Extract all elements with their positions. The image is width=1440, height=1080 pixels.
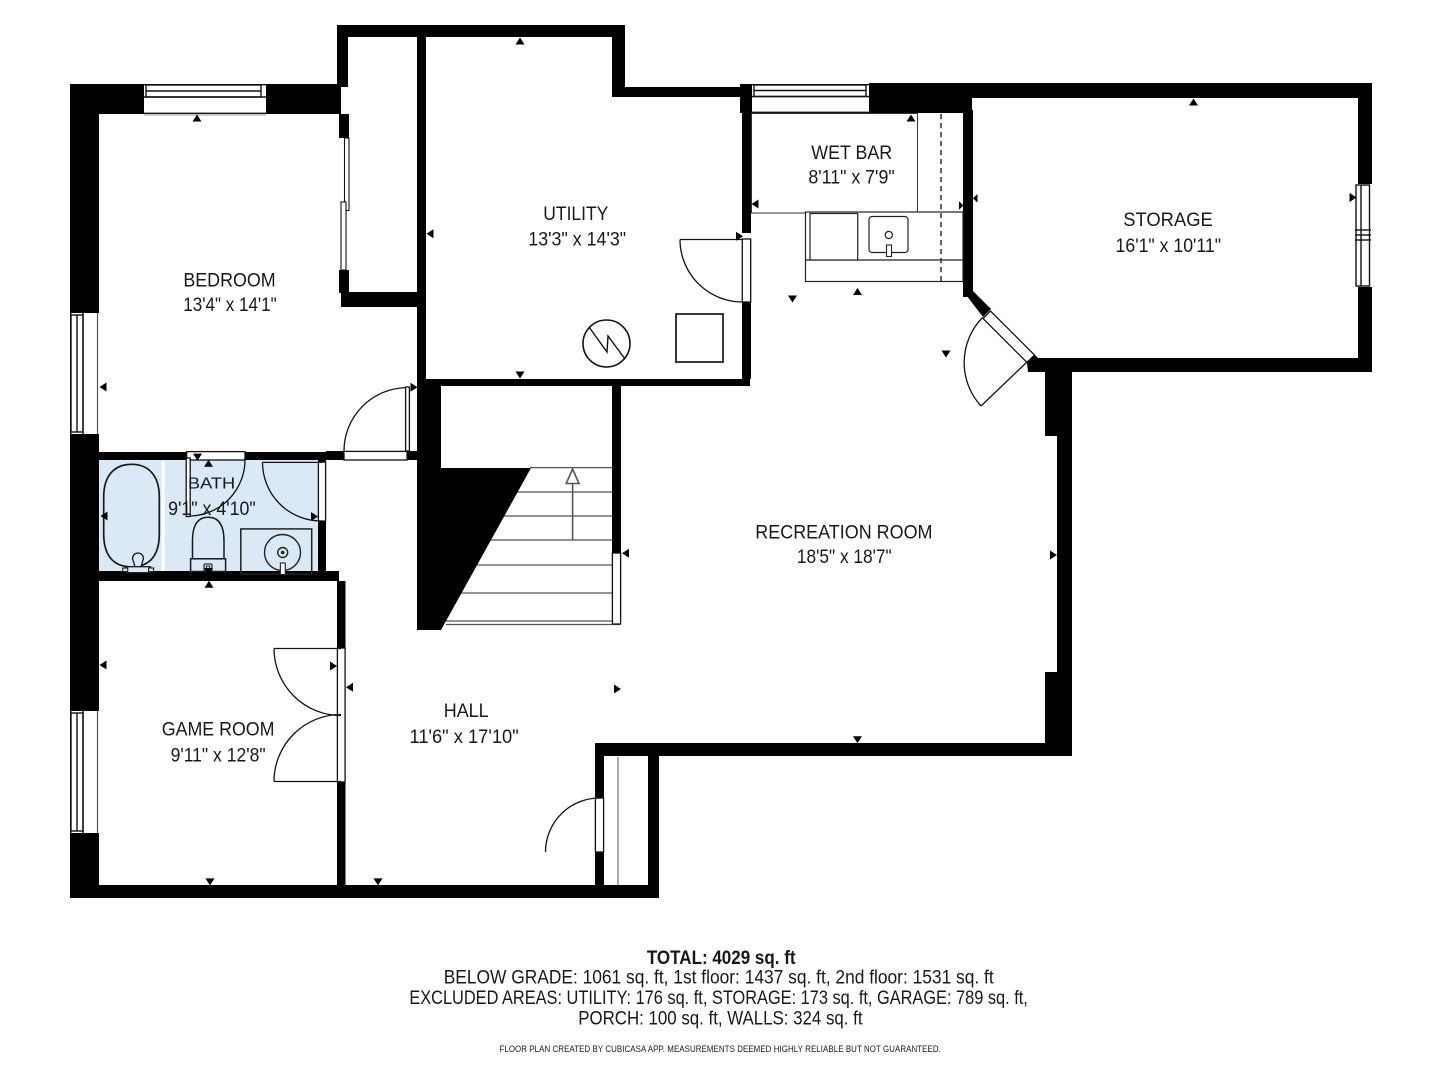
svg-text:UTILITY: UTILITY: [543, 203, 608, 225]
svg-text:TOTAL: 4029 sq. ft: TOTAL: 4029 sq. ft: [647, 948, 796, 969]
svg-text:RECREATION ROOM: RECREATION ROOM: [755, 521, 932, 543]
svg-text:18'5" x 18'7": 18'5" x 18'7": [797, 546, 892, 568]
svg-text:16'1" x 10'11": 16'1" x 10'11": [1116, 235, 1222, 257]
svg-text:13'3" x 14'3": 13'3" x 14'3": [528, 229, 626, 251]
svg-text:GAME ROOM: GAME ROOM: [162, 719, 275, 741]
svg-text:STORAGE: STORAGE: [1123, 209, 1213, 231]
svg-text:FLOOR PLAN CREATED BY CUBICASA: FLOOR PLAN CREATED BY CUBICASA APP. MEAS…: [499, 1044, 941, 1054]
svg-text:9'1" x 4'10": 9'1" x 4'10": [168, 498, 256, 520]
svg-text:8'11" x 7'9": 8'11" x 7'9": [808, 167, 894, 189]
svg-text:WET BAR: WET BAR: [811, 142, 892, 164]
svg-text:HALL: HALL: [444, 700, 489, 722]
svg-text:BELOW GRADE: 1061 sq. ft, 1st: BELOW GRADE: 1061 sq. ft, 1st floor: 143…: [444, 967, 995, 988]
svg-text:BATH: BATH: [188, 476, 235, 493]
svg-text:11'6" x 17'10": 11'6" x 17'10": [410, 726, 519, 748]
svg-text:13'4" x 14'1": 13'4" x 14'1": [183, 294, 276, 316]
svg-text:EXCLUDED AREAS: UTILITY: 176 s: EXCLUDED AREAS: UTILITY: 176 sq. ft, STO…: [409, 988, 1028, 1009]
svg-text:BEDROOM: BEDROOM: [183, 270, 275, 292]
svg-text:9'11" x 12'8": 9'11" x 12'8": [171, 745, 266, 767]
svg-text:PORCH: 100 sq. ft, WALLS: 324: PORCH: 100 sq. ft, WALLS: 324 sq. ft: [578, 1008, 863, 1029]
